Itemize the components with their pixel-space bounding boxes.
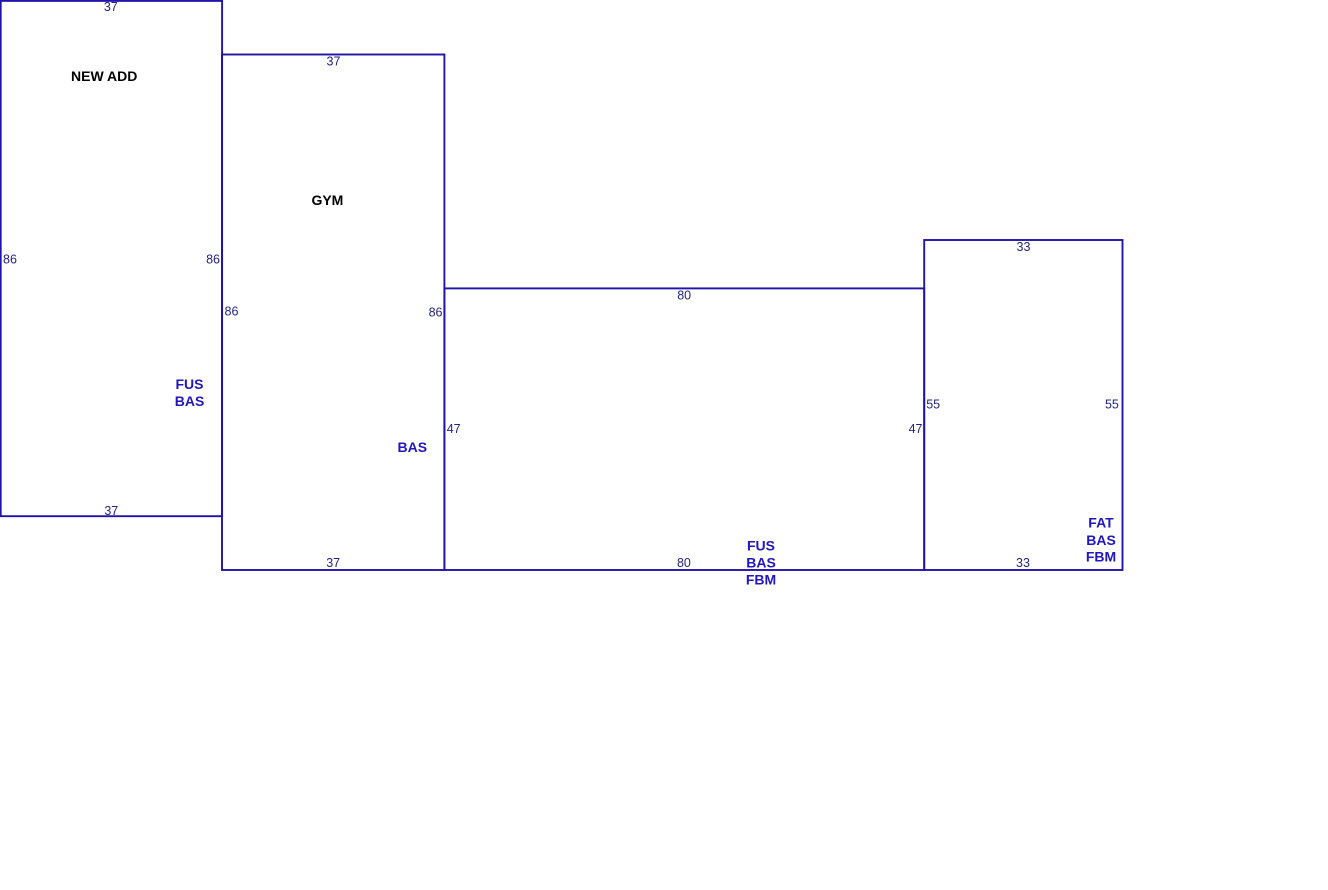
svg-text:FAT: FAT [1088,515,1114,531]
svg-text:BAS: BAS [1086,532,1116,548]
svg-text:47: 47 [909,422,923,436]
svg-text:80: 80 [677,556,691,570]
svg-text:37: 37 [327,54,341,68]
svg-text:BAS: BAS [398,439,428,455]
svg-text:86: 86 [3,253,17,267]
svg-text:47: 47 [447,422,461,436]
svg-text:NEW ADD: NEW ADD [71,68,137,84]
svg-text:BAS: BAS [746,555,776,571]
svg-text:FBM: FBM [1086,548,1116,564]
svg-text:86: 86 [429,306,443,320]
svg-text:37: 37 [104,0,118,14]
svg-text:80: 80 [677,288,691,302]
svg-text:FUS: FUS [176,376,204,392]
svg-text:55: 55 [1105,398,1119,412]
svg-text:GYM: GYM [311,192,343,208]
svg-text:86: 86 [206,253,220,267]
svg-text:33: 33 [1017,240,1031,254]
svg-text:86: 86 [225,305,239,319]
svg-text:FBM: FBM [746,571,776,587]
svg-text:55: 55 [926,398,940,412]
svg-text:33: 33 [1016,556,1030,570]
svg-text:FUS: FUS [747,538,775,554]
svg-text:37: 37 [104,504,118,518]
svg-text:37: 37 [326,556,340,570]
svg-text:BAS: BAS [175,393,205,409]
